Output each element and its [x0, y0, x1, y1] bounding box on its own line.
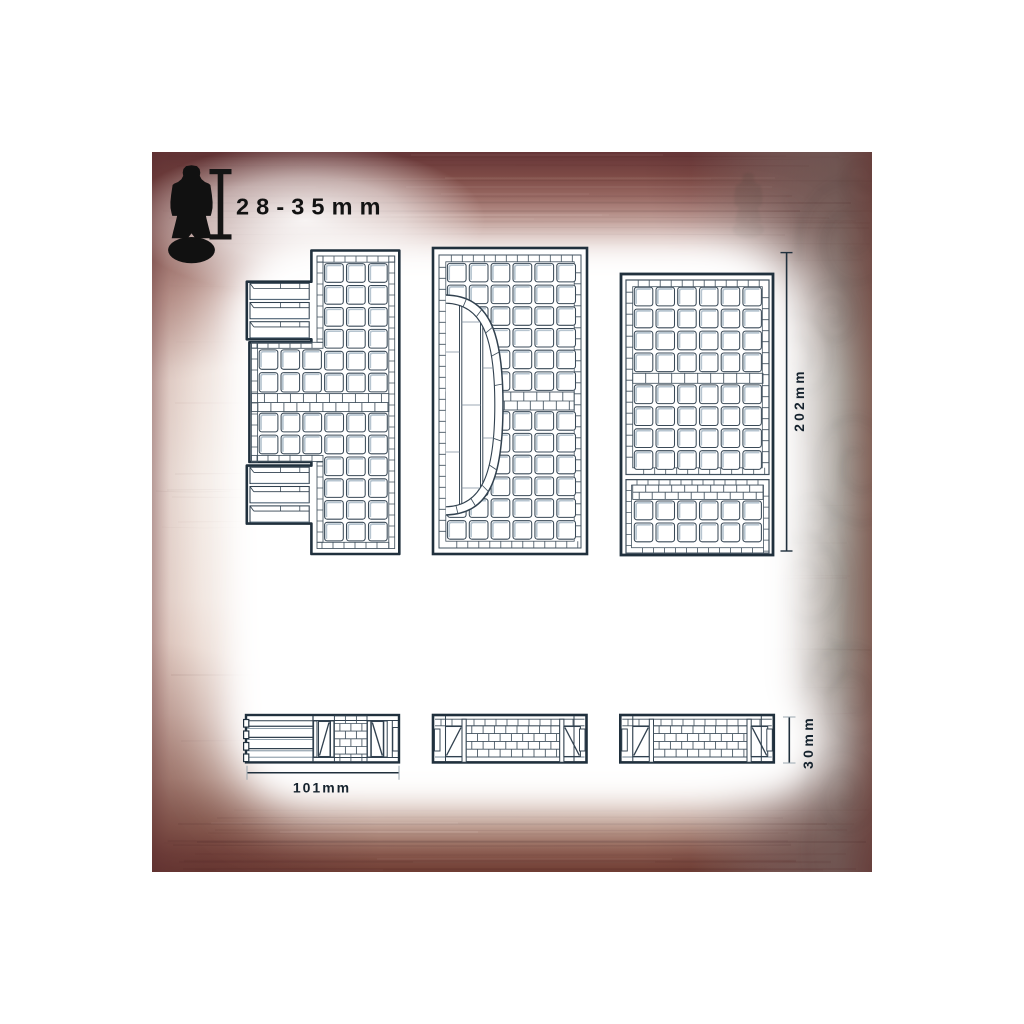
- svg-text:28-35mm: 28-35mm: [236, 194, 388, 220]
- svg-text:101mm: 101mm: [293, 780, 351, 796]
- svg-text:30mm: 30mm: [800, 715, 816, 769]
- svg-text:202mm: 202mm: [792, 368, 807, 432]
